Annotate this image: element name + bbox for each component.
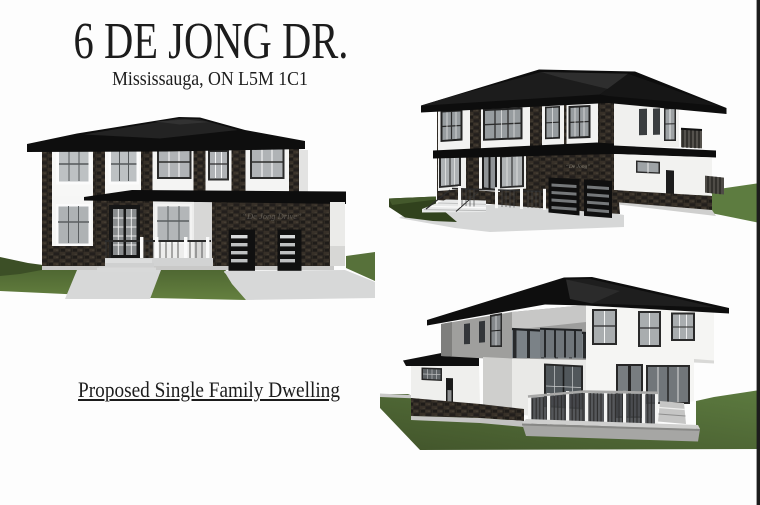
svg-text:“De Jong Drive”: “De Jong Drive” xyxy=(242,211,302,221)
svg-text:“De Jong”: “De Jong” xyxy=(566,163,591,170)
